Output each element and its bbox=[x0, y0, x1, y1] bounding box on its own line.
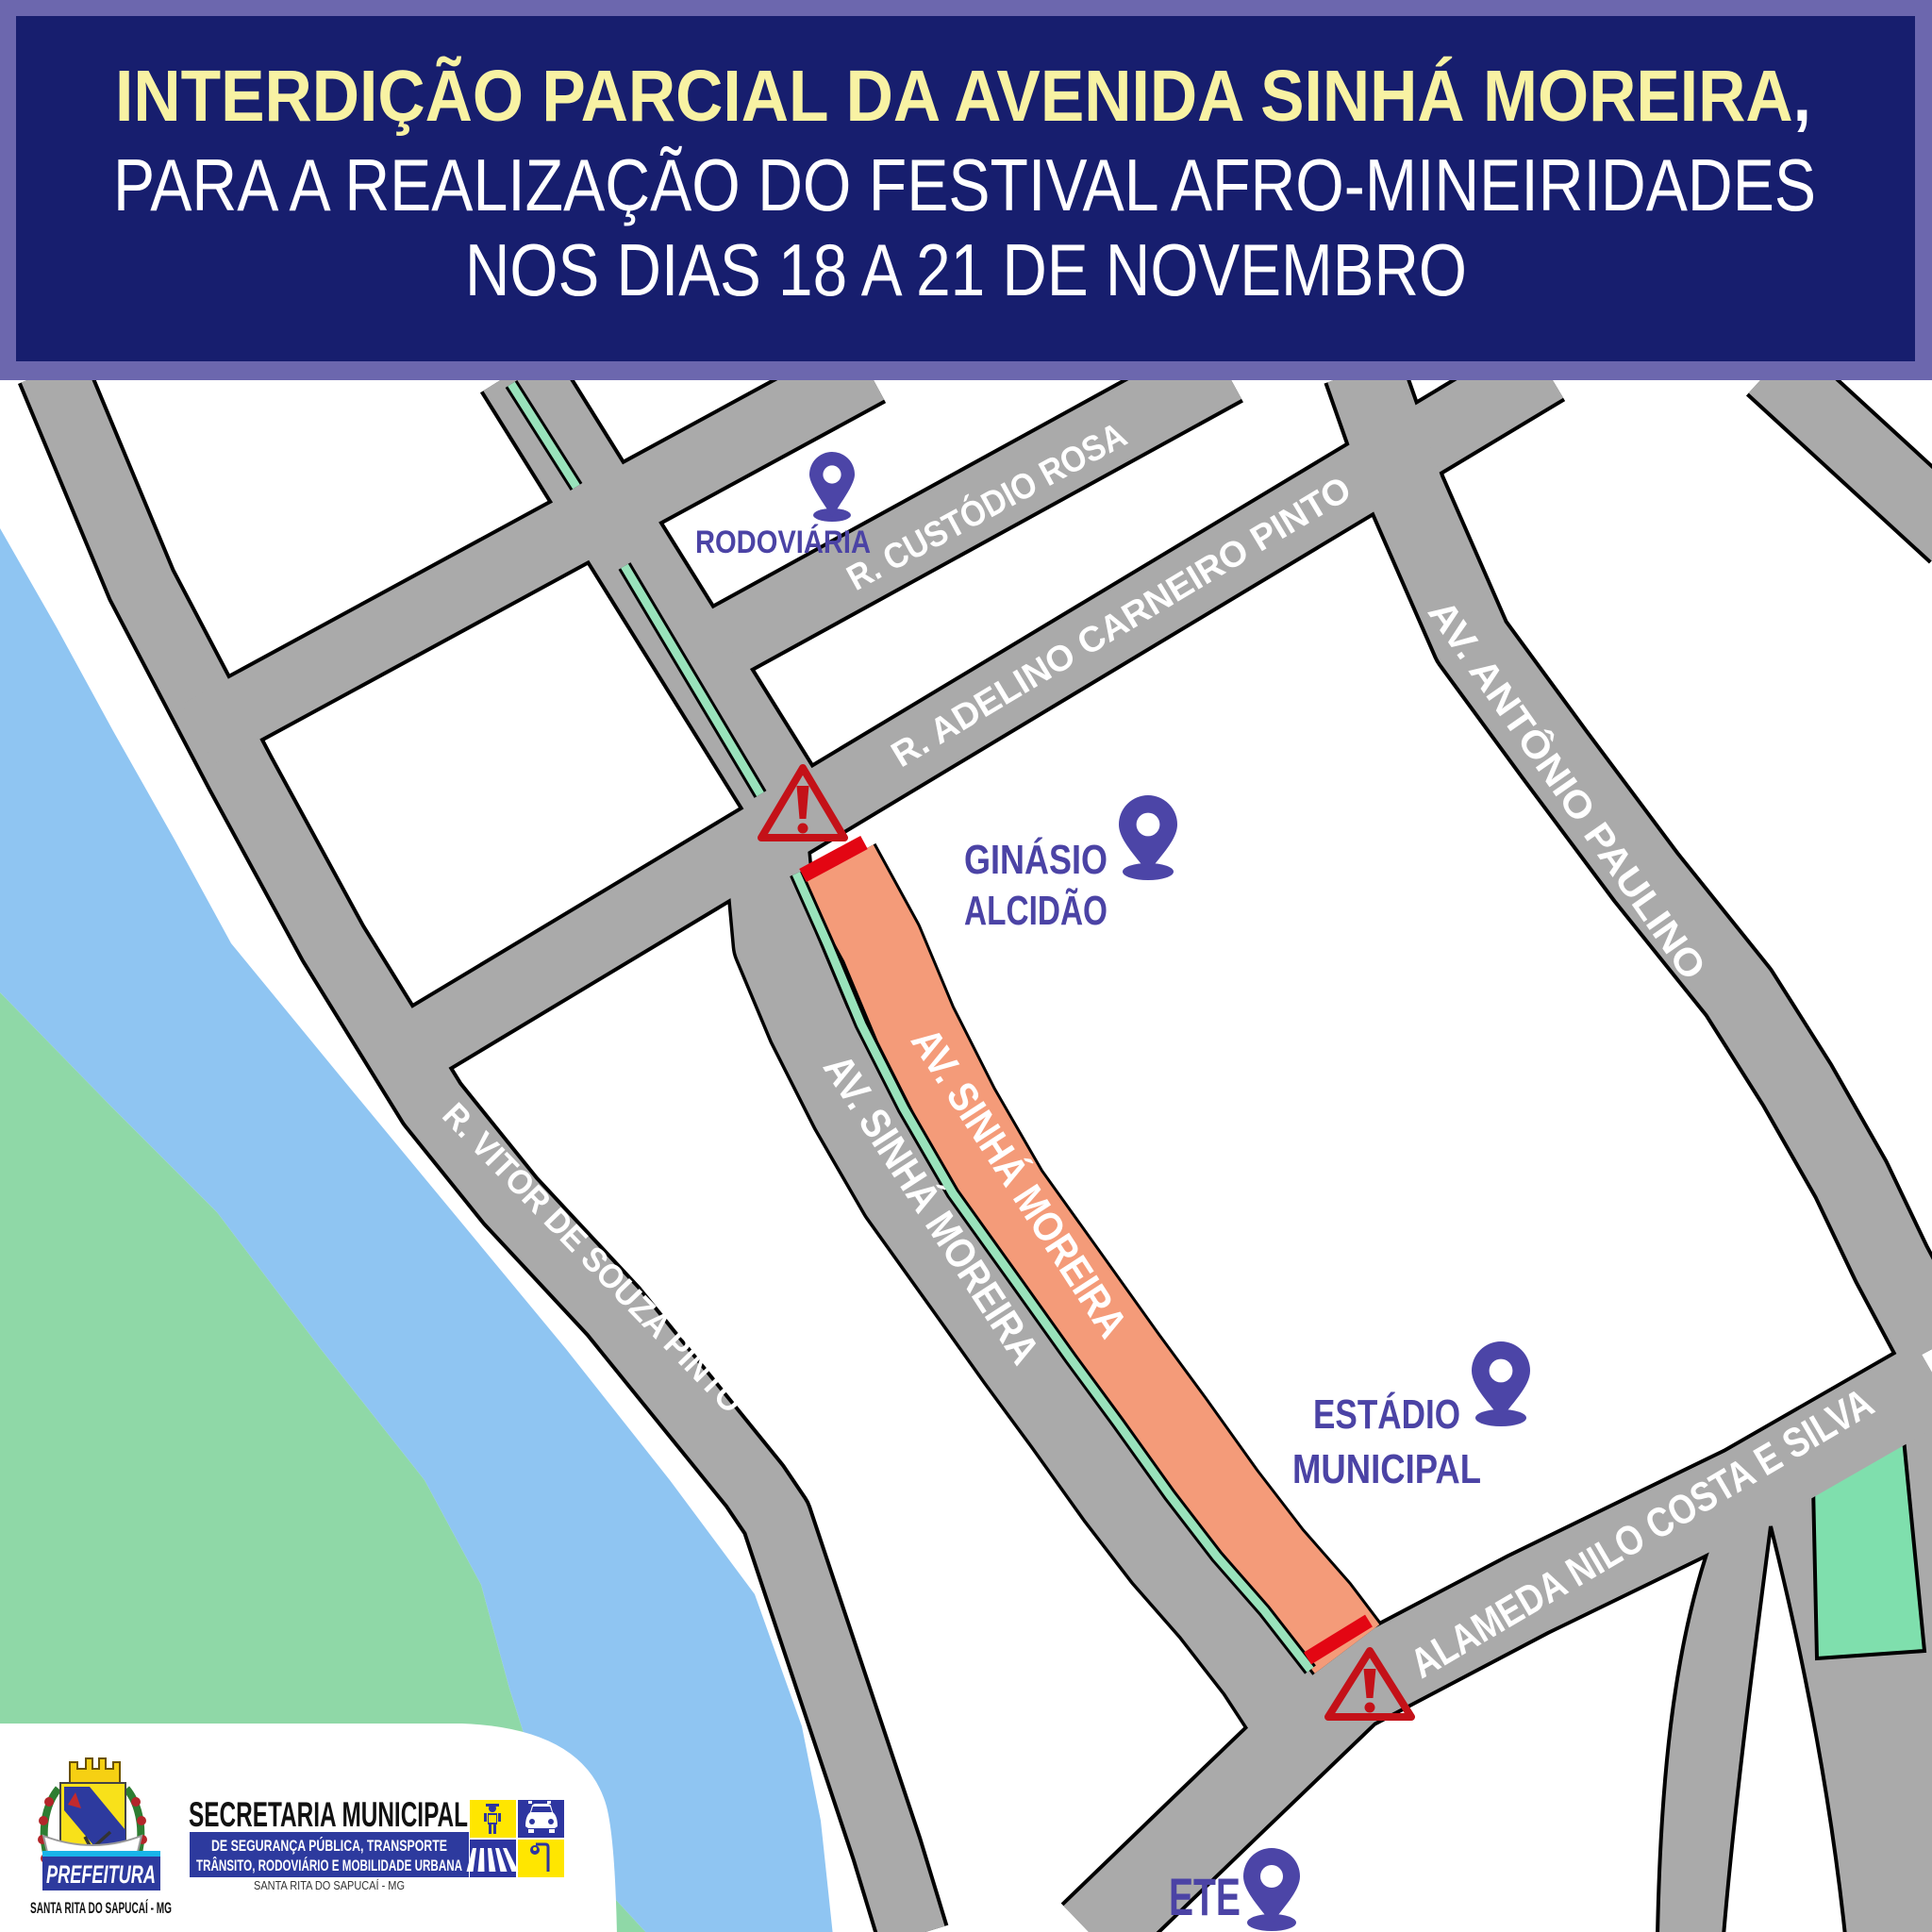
svg-text:GINÁSIO: GINÁSIO bbox=[964, 836, 1108, 883]
svg-text:ALCIDÃO: ALCIDÃO bbox=[964, 887, 1108, 934]
svg-text:MUNICIPAL: MUNICIPAL bbox=[1292, 1446, 1481, 1492]
svg-text:INTERDIÇÃO PARCIAL DA AVENIDA: INTERDIÇÃO PARCIAL DA AVENIDA SINHÁ MORE… bbox=[115, 55, 1811, 137]
svg-text:RODOVIÁRIA: RODOVIÁRIA bbox=[695, 525, 871, 560]
svg-text:ESTÁDIO: ESTÁDIO bbox=[1313, 1391, 1460, 1438]
svg-text:NOS DIAS 18 A 21 DE NOVEMBRO: NOS DIAS 18 A 21 DE NOVEMBRO bbox=[465, 228, 1467, 311]
svg-text:SANTA RITA DO SAPUCAÍ - MG: SANTA RITA DO SAPUCAÍ - MG bbox=[30, 1899, 172, 1917]
svg-text:PARA A REALIZAÇÃO DO FESTIVAL: PARA A REALIZAÇÃO DO FESTIVAL AFRO-MINEI… bbox=[113, 143, 1816, 226]
svg-text:SECRETARIA MUNICIPAL: SECRETARIA MUNICIPAL bbox=[189, 1795, 468, 1834]
svg-text:PREFEITURA: PREFEITURA bbox=[46, 1860, 156, 1889]
svg-text:DE SEGURANÇA PÚBLICA, TRANSPOR: DE SEGURANÇA PÚBLICA, TRANSPORTE bbox=[211, 1837, 447, 1855]
svg-text:ETE: ETE bbox=[1169, 1867, 1241, 1926]
svg-text:SANTA RITA DO SAPUCAÍ - MG: SANTA RITA DO SAPUCAÍ - MG bbox=[254, 1878, 405, 1892]
svg-text:TRÂNSITO, RODOVIÁRIO E MOBILID: TRÂNSITO, RODOVIÁRIO E MOBILIDADE URBANA bbox=[196, 1857, 462, 1874]
